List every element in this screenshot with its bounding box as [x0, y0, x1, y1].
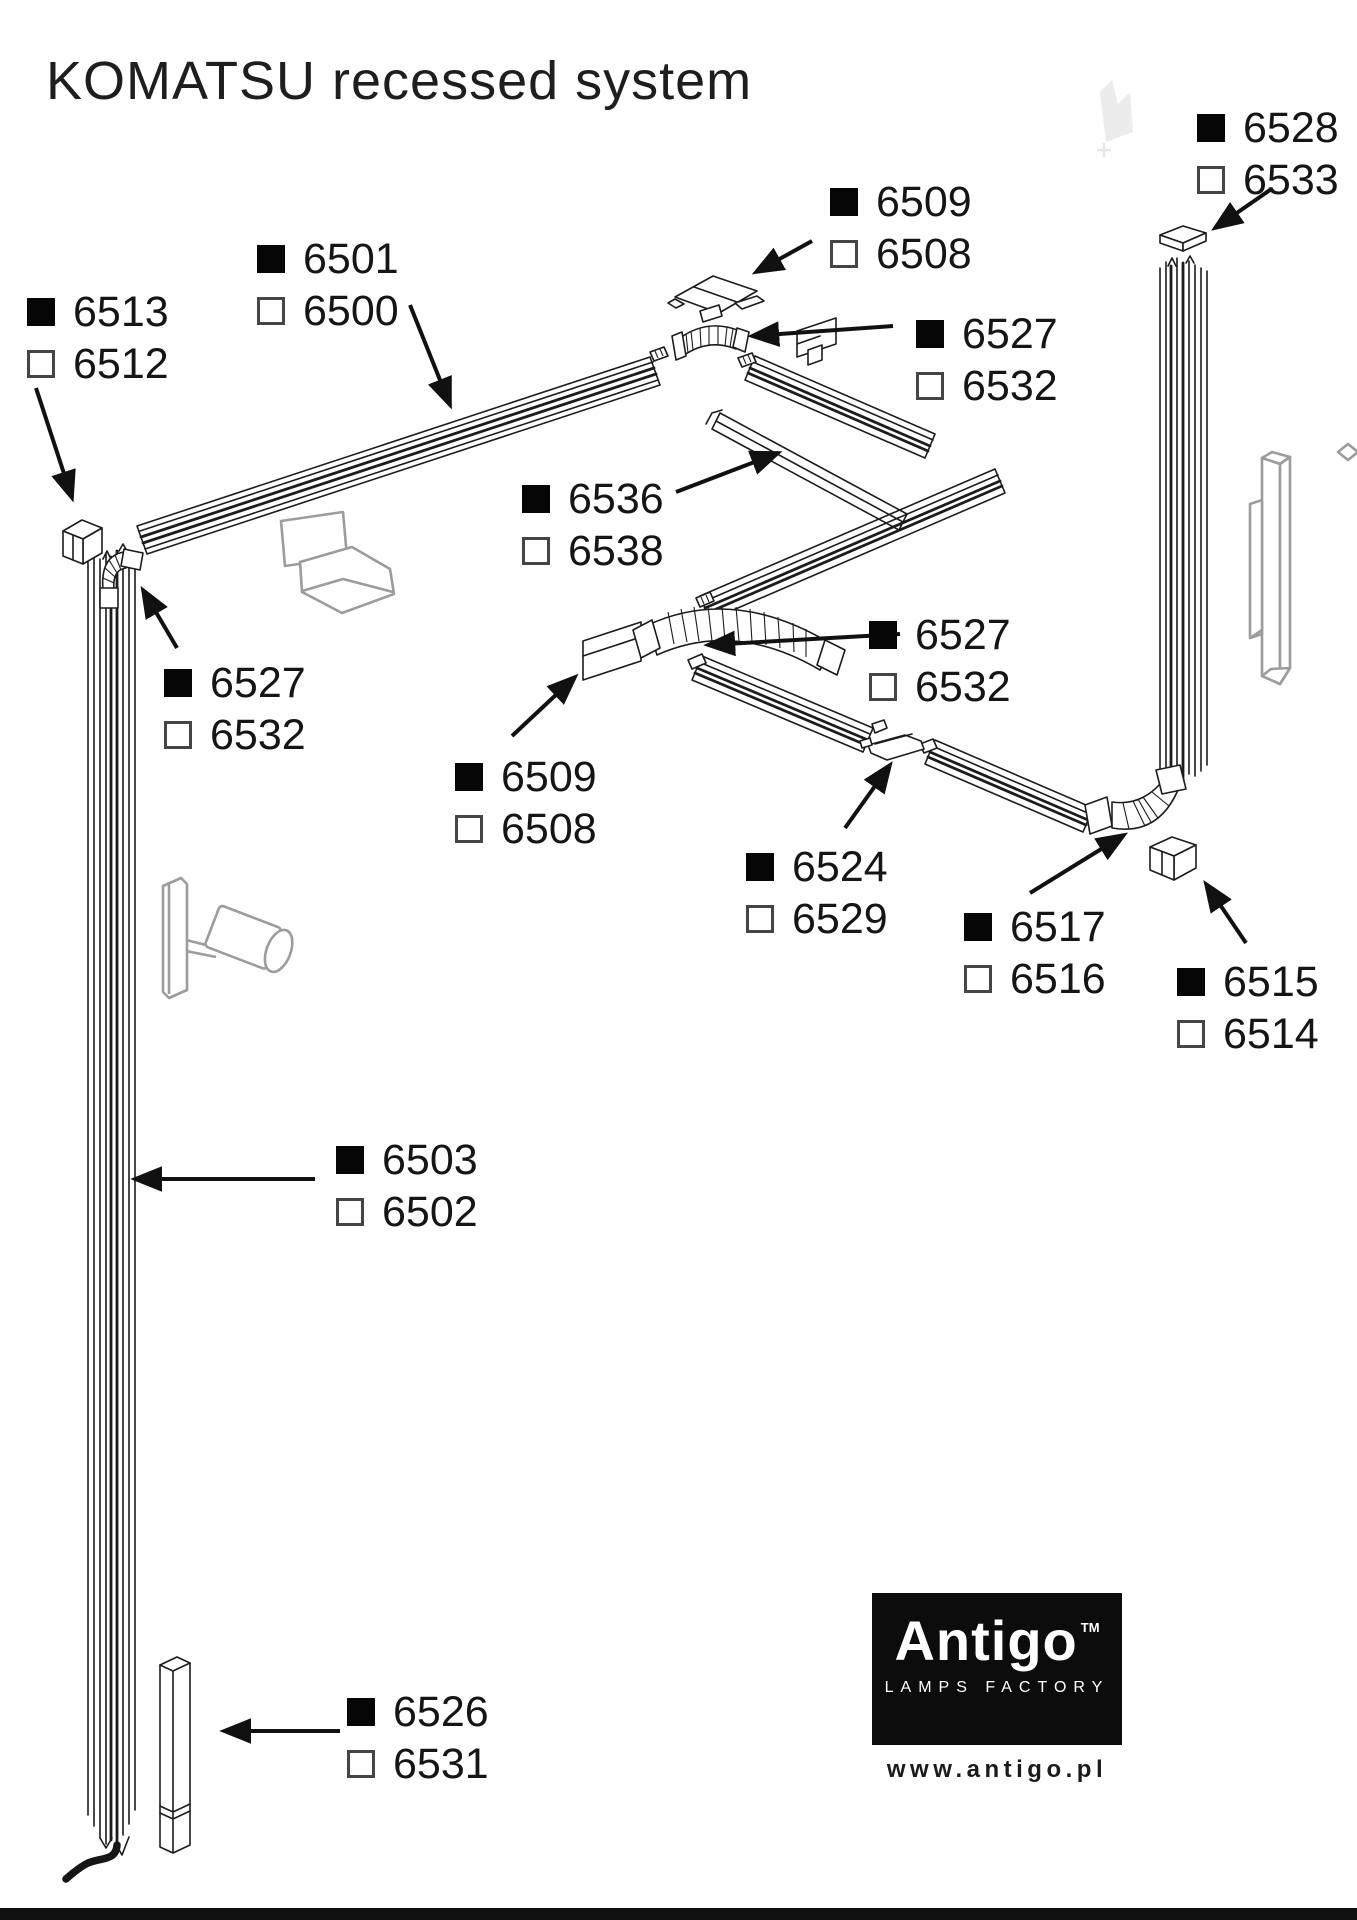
- variant-row-black: 6536: [522, 477, 664, 521]
- arrow-6509-b: [512, 677, 575, 736]
- variant-row-white: 6538: [522, 529, 664, 573]
- part-code: 6501: [303, 238, 399, 281]
- faint-watermark: [1097, 80, 1133, 157]
- vertical-track-left: [66, 544, 135, 1879]
- black-variant-swatch: [336, 1146, 364, 1174]
- flexible-connector-corner: [1085, 765, 1186, 834]
- part-code: 6524: [792, 846, 888, 889]
- white-variant-swatch: [916, 372, 944, 400]
- arrow-6517: [1030, 835, 1124, 893]
- white-variant-swatch: [164, 721, 192, 749]
- part-code: 6529: [792, 898, 888, 941]
- white-variant-swatch: [964, 965, 992, 993]
- part-code: 6516: [1010, 958, 1106, 1001]
- surface-profile-piece: [160, 1657, 190, 1853]
- part-code: 6509: [876, 181, 972, 224]
- variant-row-white: 6512: [27, 342, 169, 386]
- part-label-6509-6508-b: 6509 6508: [455, 755, 597, 859]
- variant-row-black: 6527: [164, 661, 306, 705]
- black-variant-swatch: [347, 1698, 375, 1726]
- part-label-6527-6532-a: 6527 6532: [916, 312, 1058, 416]
- part-label-6528-6533: 6528 6533: [1197, 106, 1339, 210]
- variant-row-black: 6501: [257, 237, 399, 281]
- variant-row-black: 6509: [455, 755, 597, 799]
- part-code: 6527: [210, 662, 306, 705]
- part-code: 6502: [382, 1191, 478, 1234]
- white-variant-swatch: [869, 673, 897, 701]
- black-variant-swatch: [869, 621, 897, 649]
- part-code: 6533: [1243, 159, 1339, 202]
- arrow-6501: [410, 305, 450, 405]
- variant-row-white: 6533: [1197, 158, 1339, 202]
- part-code: 6538: [568, 530, 664, 573]
- brand-name: AntigoTM: [872, 1613, 1122, 1669]
- part-code: 6514: [1223, 1013, 1319, 1056]
- arrow-6527-b: [143, 590, 177, 648]
- variant-row-white: 6514: [1177, 1012, 1319, 1056]
- variant-row-white: 6532: [164, 713, 306, 757]
- end-cap: [1160, 226, 1206, 251]
- black-variant-swatch: [916, 320, 944, 348]
- part-label-6501-6500: 6501 6500: [257, 237, 399, 341]
- track-diagonal-upper-right: [738, 353, 935, 458]
- white-variant-swatch: [257, 297, 285, 325]
- vertical-track-right: [1160, 256, 1207, 779]
- part-label-6526-6531: 6526 6531: [347, 1690, 489, 1794]
- footer-bar: [0, 1908, 1357, 1920]
- part-code: 6503: [382, 1139, 478, 1182]
- variant-row-black: 6503: [336, 1138, 478, 1182]
- black-variant-swatch: [1177, 968, 1205, 996]
- white-variant-swatch: [746, 905, 774, 933]
- website-url: www.antigo.pl: [872, 1756, 1122, 1784]
- part-code: 6532: [962, 365, 1058, 408]
- white-variant-swatch: [336, 1198, 364, 1226]
- part-label-6513-6512: 6513 6512: [27, 290, 169, 394]
- variant-row-black: 6527: [869, 613, 1011, 657]
- variant-row-white: 6502: [336, 1190, 478, 1234]
- white-variant-swatch: [1197, 166, 1225, 194]
- spotlight-fixture-drawing: [163, 878, 298, 998]
- part-label-6524-6529: 6524 6529: [746, 845, 888, 949]
- wall-lamp-drawing: [1250, 444, 1357, 684]
- variant-row-black: 6528: [1197, 106, 1339, 150]
- white-variant-swatch: [347, 1750, 375, 1778]
- black-variant-swatch: [964, 913, 992, 941]
- part-label-6509-6508-a: 6509 6508: [830, 180, 972, 284]
- variant-row-white: 6529: [746, 897, 888, 941]
- variant-row-white: 6508: [830, 232, 972, 276]
- part-label-6536-6538: 6536 6538: [522, 477, 664, 581]
- part-code: 6515: [1223, 961, 1319, 1004]
- black-variant-swatch: [455, 763, 483, 791]
- corner-connector-left: [63, 520, 102, 564]
- variant-row-white: 6508: [455, 807, 597, 851]
- brand-tagline: LAMPS FACTORY: [872, 1679, 1122, 1697]
- black-variant-swatch: [830, 188, 858, 216]
- black-variant-swatch: [1197, 114, 1225, 142]
- mounting-bracket-top: [797, 318, 836, 365]
- part-code: 6527: [962, 313, 1058, 356]
- track-diagonal-lower-left: [688, 654, 887, 752]
- black-variant-swatch: [27, 298, 55, 326]
- part-label-6527-6532-b: 6527 6532: [164, 661, 306, 765]
- part-label-6527-6532-c: 6527 6532: [869, 613, 1011, 717]
- track-diagonal-mid: [696, 469, 1005, 620]
- white-variant-swatch: [1177, 1020, 1205, 1048]
- variant-row-black: 6524: [746, 845, 888, 889]
- part-label-6503-6502: 6503 6502: [336, 1138, 478, 1242]
- arrow-6513: [36, 388, 72, 498]
- black-variant-swatch: [522, 485, 550, 513]
- white-variant-swatch: [522, 537, 550, 565]
- arrow-6536: [676, 453, 778, 492]
- arrow-6524: [845, 765, 890, 828]
- variant-row-white: 6532: [916, 364, 1058, 408]
- page-title: KOMATSU recessed system: [46, 50, 752, 112]
- part-label-6517-6516: 6517 6516: [964, 905, 1106, 1009]
- white-variant-swatch: [27, 350, 55, 378]
- variant-row-white: 6532: [869, 665, 1011, 709]
- part-code: 6536: [568, 478, 664, 521]
- track-diagonal-lower-right: [920, 739, 1093, 832]
- part-code: 6532: [915, 666, 1011, 709]
- flexible-connector-top: [672, 326, 749, 360]
- part-code: 6526: [393, 1691, 489, 1734]
- part-code: 6509: [501, 756, 597, 799]
- part-code: 6513: [73, 291, 169, 334]
- catalog-page: KOMATSU recessed system: [0, 0, 1357, 1920]
- variant-row-black: 6515: [1177, 960, 1319, 1004]
- arrow-6515: [1206, 884, 1246, 943]
- part-code: 6508: [876, 233, 972, 276]
- white-variant-swatch: [455, 815, 483, 843]
- corner-connector-right: [1150, 837, 1196, 880]
- part-code: 6528: [1243, 107, 1339, 150]
- variant-row-white: 6500: [257, 289, 399, 333]
- variant-row-white: 6516: [964, 957, 1106, 1001]
- brand-logo: AntigoTM LAMPS FACTORY: [872, 1593, 1122, 1745]
- part-code: 6512: [73, 343, 169, 386]
- variant-row-black: 6526: [347, 1690, 489, 1734]
- part-code: 6532: [210, 714, 306, 757]
- black-variant-swatch: [164, 669, 192, 697]
- part-code: 6500: [303, 290, 399, 333]
- arrow-6509-a: [756, 241, 812, 272]
- part-label-6515-6514: 6515 6514: [1177, 960, 1319, 1064]
- variant-row-black: 6513: [27, 290, 169, 334]
- track-joiner: [860, 734, 924, 760]
- part-code: 6508: [501, 808, 597, 851]
- white-variant-swatch: [830, 240, 858, 268]
- exploded-diagram: [0, 0, 1357, 1920]
- variant-row-black: 6527: [916, 312, 1058, 356]
- ceiling-fixture-drawing: [281, 512, 394, 613]
- black-variant-swatch: [257, 245, 285, 273]
- black-variant-swatch: [746, 853, 774, 881]
- variant-row-black: 6517: [964, 905, 1106, 949]
- part-code: 6527: [915, 614, 1011, 657]
- part-code: 6517: [1010, 906, 1106, 949]
- variant-row-white: 6531: [347, 1742, 489, 1786]
- corner-connector-top: [668, 276, 764, 322]
- part-code: 6531: [393, 1743, 489, 1786]
- variant-row-black: 6509: [830, 180, 972, 224]
- trademark-symbol: TM: [1081, 1620, 1100, 1635]
